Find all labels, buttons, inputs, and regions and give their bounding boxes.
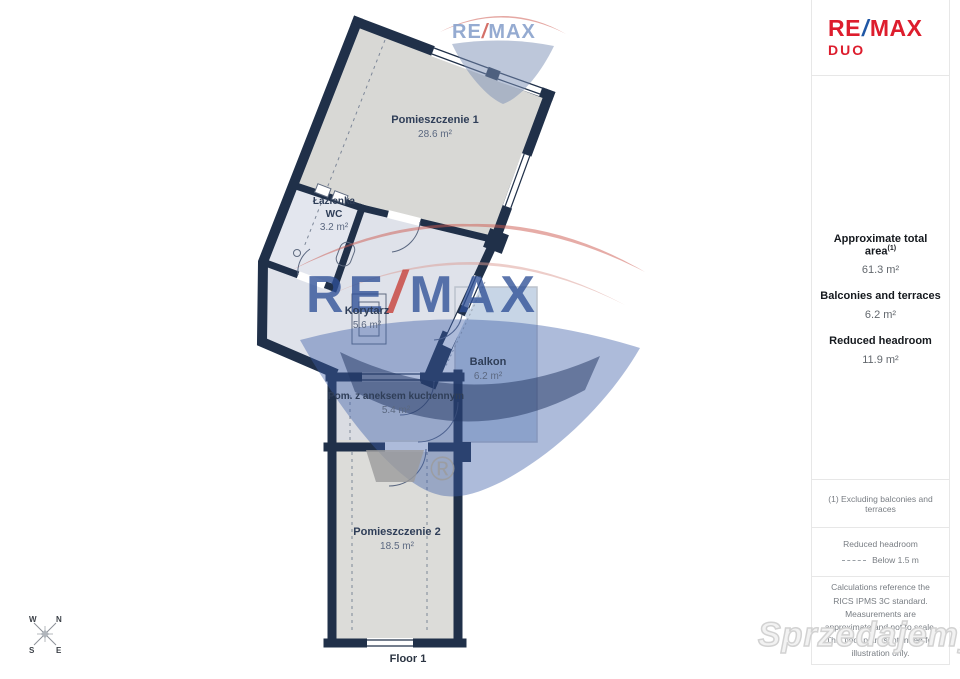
room-name: Pomieszczenie 1 <box>391 114 478 128</box>
room-area: 5.6 m² <box>345 320 390 333</box>
room-name-line2: WC <box>313 209 355 222</box>
stat-label-reduced-headroom: Reduced headroom <box>829 335 932 347</box>
footnote-excluding-balconies: (1) Excluding balconies and terraces <box>812 480 949 528</box>
area-stats: Approximate total area(1) 61.3 m² Balcon… <box>812 76 949 480</box>
logo-duo-text: DUO <box>828 42 949 58</box>
balloon-large-text: RE/MAX <box>306 260 540 325</box>
stat-label-balconies: Balconies and terraces <box>820 290 940 302</box>
room-label-kuchnia: Pom. z aneksem kuchennym 5.4 m² <box>328 391 464 417</box>
room-name: Korytarz <box>345 305 390 319</box>
remax-logo-text: RE/MAX <box>828 17 949 40</box>
room-label-pom2: Pomieszczenie 2 18.5 m² <box>353 526 440 553</box>
compass-rose: W N S E <box>29 615 62 655</box>
room-name: Balkon <box>470 356 507 370</box>
room-name: Łazienka <box>313 196 355 209</box>
logo-slash: / <box>861 15 870 41</box>
compass-s: S <box>29 646 35 655</box>
remax-duo-logo: RE/MAX DUO <box>812 0 949 76</box>
room-area: 6.2 m² <box>470 371 507 384</box>
room-label-lazienka: Łazienka WC 3.2 m² <box>313 196 355 235</box>
stat-label-total-area: Approximate total area(1) <box>820 233 941 258</box>
room-label-balkon: Balkon 6.2 m² <box>470 356 507 383</box>
reduced-headroom-legend: Reduced headroom Below 1.5 m <box>812 528 949 577</box>
dashed-line-sample <box>842 560 866 561</box>
registered-mark: ® <box>430 450 455 488</box>
compass-w: W <box>29 615 37 624</box>
legend-value: Below 1.5 m <box>872 555 919 565</box>
legend-title: Reduced headroom <box>843 539 918 549</box>
disclaimer-note: Calculations reference the RICS IPMS 3C … <box>812 577 949 665</box>
room-label-pom1: Pomieszczenie 1 28.6 m² <box>391 114 478 141</box>
stat-value-balconies: 6.2 m² <box>865 309 896 321</box>
room-area: 18.5 m² <box>353 541 440 554</box>
balloon-basket <box>366 450 424 482</box>
floorplan-page: RE/MAX RE/MAX ® <box>0 0 960 679</box>
plan-area: RE/MAX RE/MAX ® <box>0 0 812 679</box>
compass-e: E <box>56 646 62 655</box>
stat-value-total-area: 61.3 m² <box>862 264 899 276</box>
room-name: Pom. z aneksem kuchennym <box>328 391 464 404</box>
room-name: Pomieszczenie 2 <box>353 526 440 540</box>
room-area: 5.4 m² <box>328 405 464 418</box>
compass-n: N <box>56 615 62 624</box>
footnote-marker: (1) <box>888 245 897 252</box>
room-area: 28.6 m² <box>391 129 478 142</box>
balloon-small-text: RE/MAX <box>452 21 536 43</box>
floorplan-svg: RE/MAX RE/MAX ® <box>0 0 812 679</box>
info-sidebar: RE/MAX DUO Approximate total area(1) 61.… <box>811 0 950 665</box>
floor-label: Floor 1 <box>390 653 427 665</box>
legend-row: Below 1.5 m <box>842 555 919 565</box>
stat-value-reduced-headroom: 11.9 m² <box>862 354 898 366</box>
room-area: 3.2 m² <box>313 222 355 235</box>
room-label-korytarz: Korytarz 5.6 m² <box>345 305 390 332</box>
